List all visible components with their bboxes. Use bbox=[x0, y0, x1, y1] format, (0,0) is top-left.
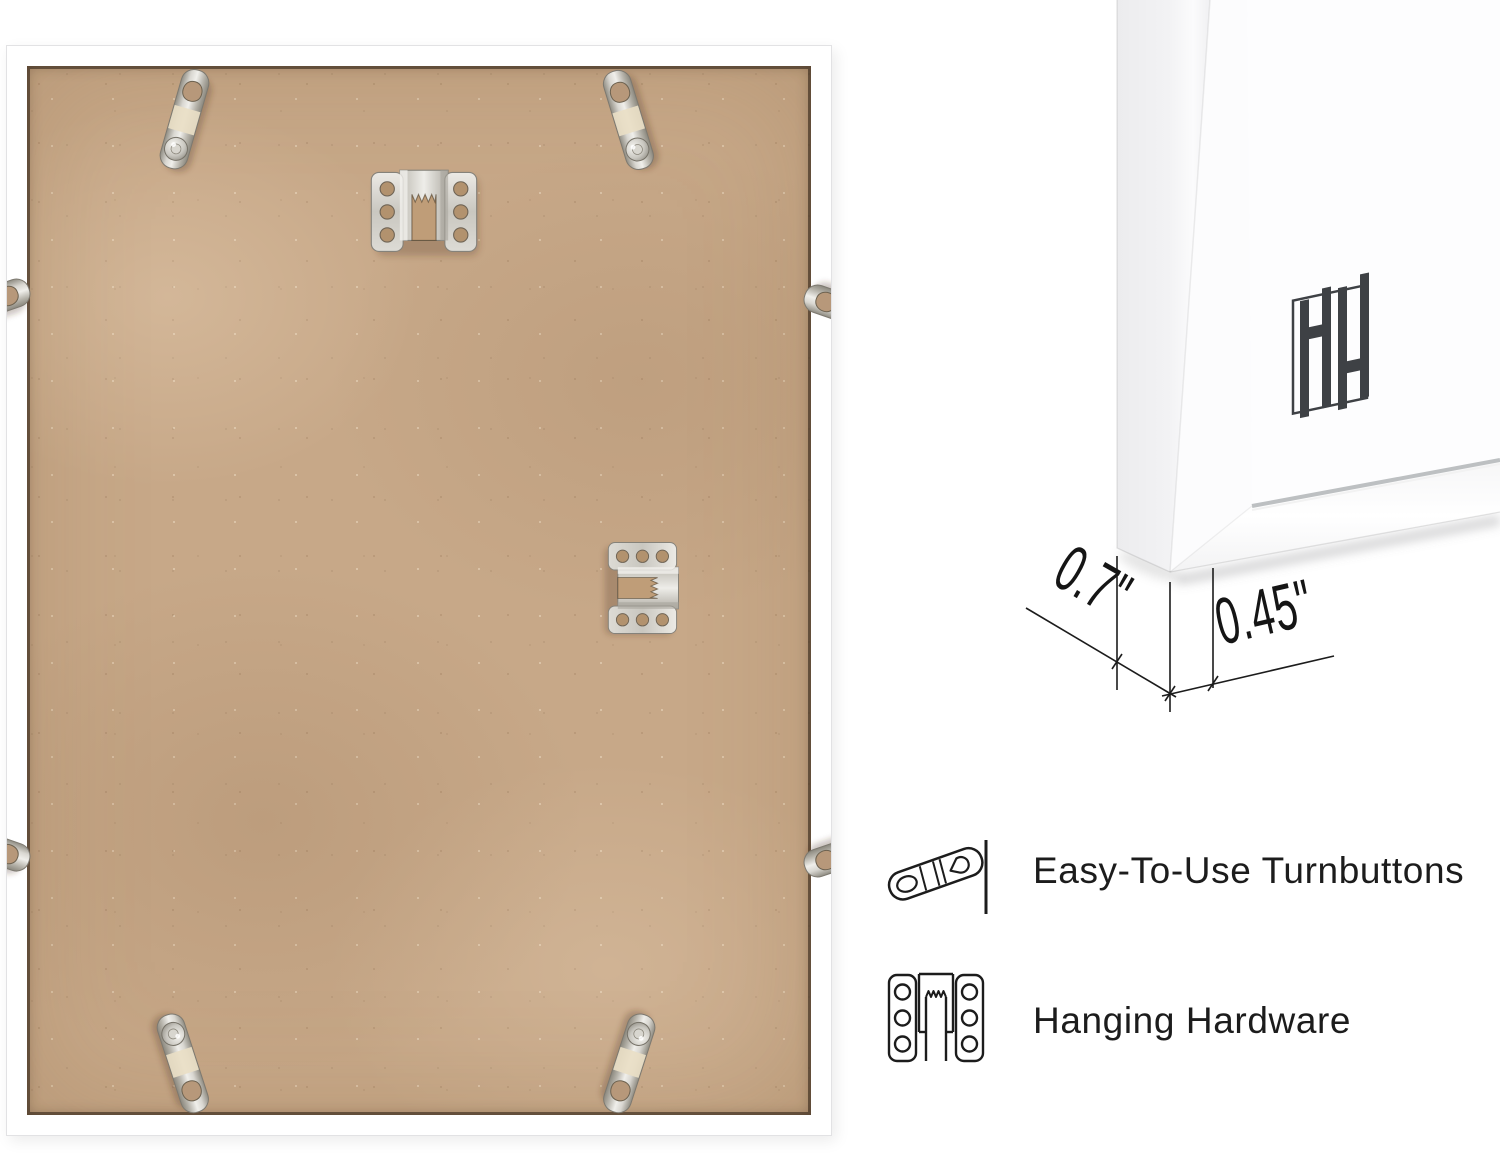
hh-logo-crossbar bbox=[1338, 356, 1369, 375]
mat-area bbox=[1247, 0, 1500, 506]
hh-logo bbox=[1293, 272, 1369, 419]
tick-mark bbox=[1112, 654, 1122, 669]
dimension-lines bbox=[1026, 556, 1334, 712]
turnbutton-bottom-left bbox=[148, 1009, 211, 1118]
feature-hanging-hardware-label: Hanging Hardware bbox=[1033, 1000, 1351, 1042]
hh-logo-outline bbox=[1293, 285, 1367, 414]
turnbutton-left-upper bbox=[7, 276, 35, 341]
frame-drop-shadow bbox=[1178, 520, 1500, 580]
plate-hole bbox=[962, 985, 977, 1000]
plate-hole bbox=[895, 1011, 910, 1026]
face-dimension-line bbox=[1162, 656, 1334, 696]
turnbutton-right-upper bbox=[801, 277, 831, 342]
hanging-hardware-icon bbox=[886, 968, 986, 1068]
plate-hole bbox=[895, 985, 910, 1000]
sawtooth-zigzag bbox=[926, 991, 946, 997]
frame-miter-edge bbox=[1170, 506, 1252, 572]
feature-turnbuttons-label: Easy-To-Use Turnbuttons bbox=[1033, 850, 1464, 892]
hh-logo-bar bbox=[1322, 287, 1331, 409]
face-dimension-label: 0.45" bbox=[1208, 565, 1320, 659]
turnbutton-top-right bbox=[600, 66, 662, 175]
glass-edge-line bbox=[1252, 460, 1500, 506]
frame-outline bbox=[1117, 0, 1500, 572]
frame-corner-edge bbox=[1170, 0, 1210, 572]
corner-shadow bbox=[1115, 545, 1185, 587]
frame-bottom-face bbox=[1170, 460, 1500, 572]
hh-logo-bar bbox=[1300, 299, 1309, 418]
frame-side-face bbox=[1117, 0, 1210, 572]
tick-mark bbox=[1165, 686, 1175, 701]
sawtooth-hanger-top bbox=[371, 170, 479, 256]
plate-hole bbox=[895, 1037, 910, 1052]
turnbutton-bottom-right bbox=[596, 1007, 659, 1116]
frame-hardware-layer bbox=[7, 46, 831, 1135]
turnbutton-right-lower bbox=[799, 816, 831, 881]
sawtooth-hanger-middle bbox=[605, 543, 679, 636]
glass-reflection bbox=[1252, 464, 1500, 510]
turnbutton-left-lower bbox=[7, 814, 33, 879]
hh-logo-bar bbox=[1360, 272, 1369, 398]
depth-dimension-label: 0.7" bbox=[1043, 530, 1144, 631]
plate-hole bbox=[962, 1037, 977, 1052]
turnbutton-icon bbox=[878, 832, 996, 920]
tick-mark bbox=[1208, 676, 1218, 691]
hh-logo-bar bbox=[1338, 286, 1347, 410]
plate-hole bbox=[962, 1011, 977, 1026]
depth-dimension-line bbox=[1026, 608, 1176, 697]
frame-back-photo bbox=[6, 45, 832, 1136]
frame-front-face bbox=[1170, 0, 1252, 572]
hh-logo-crossbar bbox=[1300, 323, 1331, 342]
turnbutton-top-left bbox=[157, 66, 217, 175]
